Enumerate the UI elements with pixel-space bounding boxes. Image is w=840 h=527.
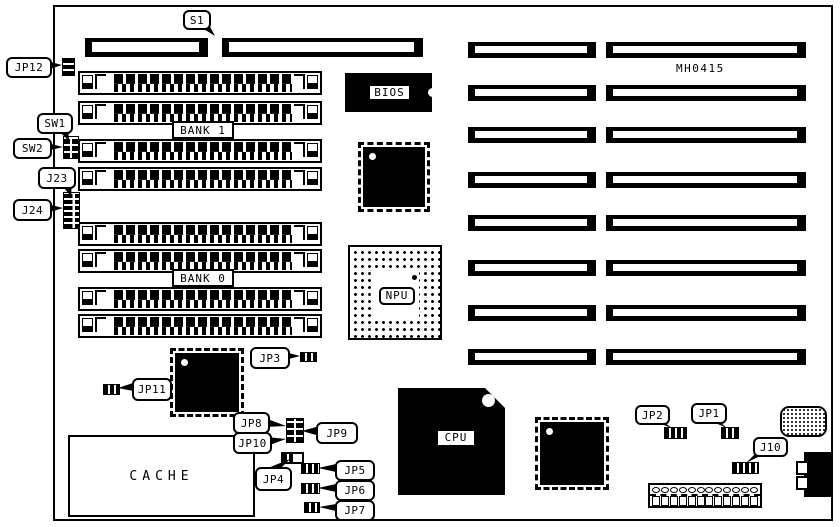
callout-jp3: JP3: [250, 347, 290, 369]
callout-jp5: JP5: [335, 460, 375, 481]
callout-jp12: JP12: [6, 57, 52, 78]
bank0-label: BANK 0: [172, 269, 234, 287]
bank1-label: BANK 1: [172, 121, 234, 139]
callout-jp11: JP11: [132, 378, 172, 401]
callout-jp10: JP10: [233, 432, 272, 454]
callout-sw2: SW2: [13, 138, 52, 159]
callout-sw1: SW1: [37, 113, 73, 134]
callout-jp4: JP4: [255, 467, 292, 491]
callout-jp2: JP2: [635, 405, 670, 425]
callout-jp8: JP8: [233, 412, 270, 434]
callout-jp6: JP6: [335, 480, 375, 501]
callout-j10: J10: [753, 437, 788, 457]
callout-jp9: JP9: [316, 422, 358, 444]
callout-jp7: JP7: [335, 500, 375, 521]
callout-s1: S1: [183, 10, 211, 30]
callout-jp1: JP1: [691, 403, 727, 424]
callout-j24: J24: [13, 199, 52, 221]
motherboard-diagram: MH0415 BANK 1 BANK 0 BIOS NPU CPU CACHE: [0, 0, 840, 527]
callout-tails: [0, 0, 840, 527]
callout-j23: J23: [38, 167, 76, 189]
